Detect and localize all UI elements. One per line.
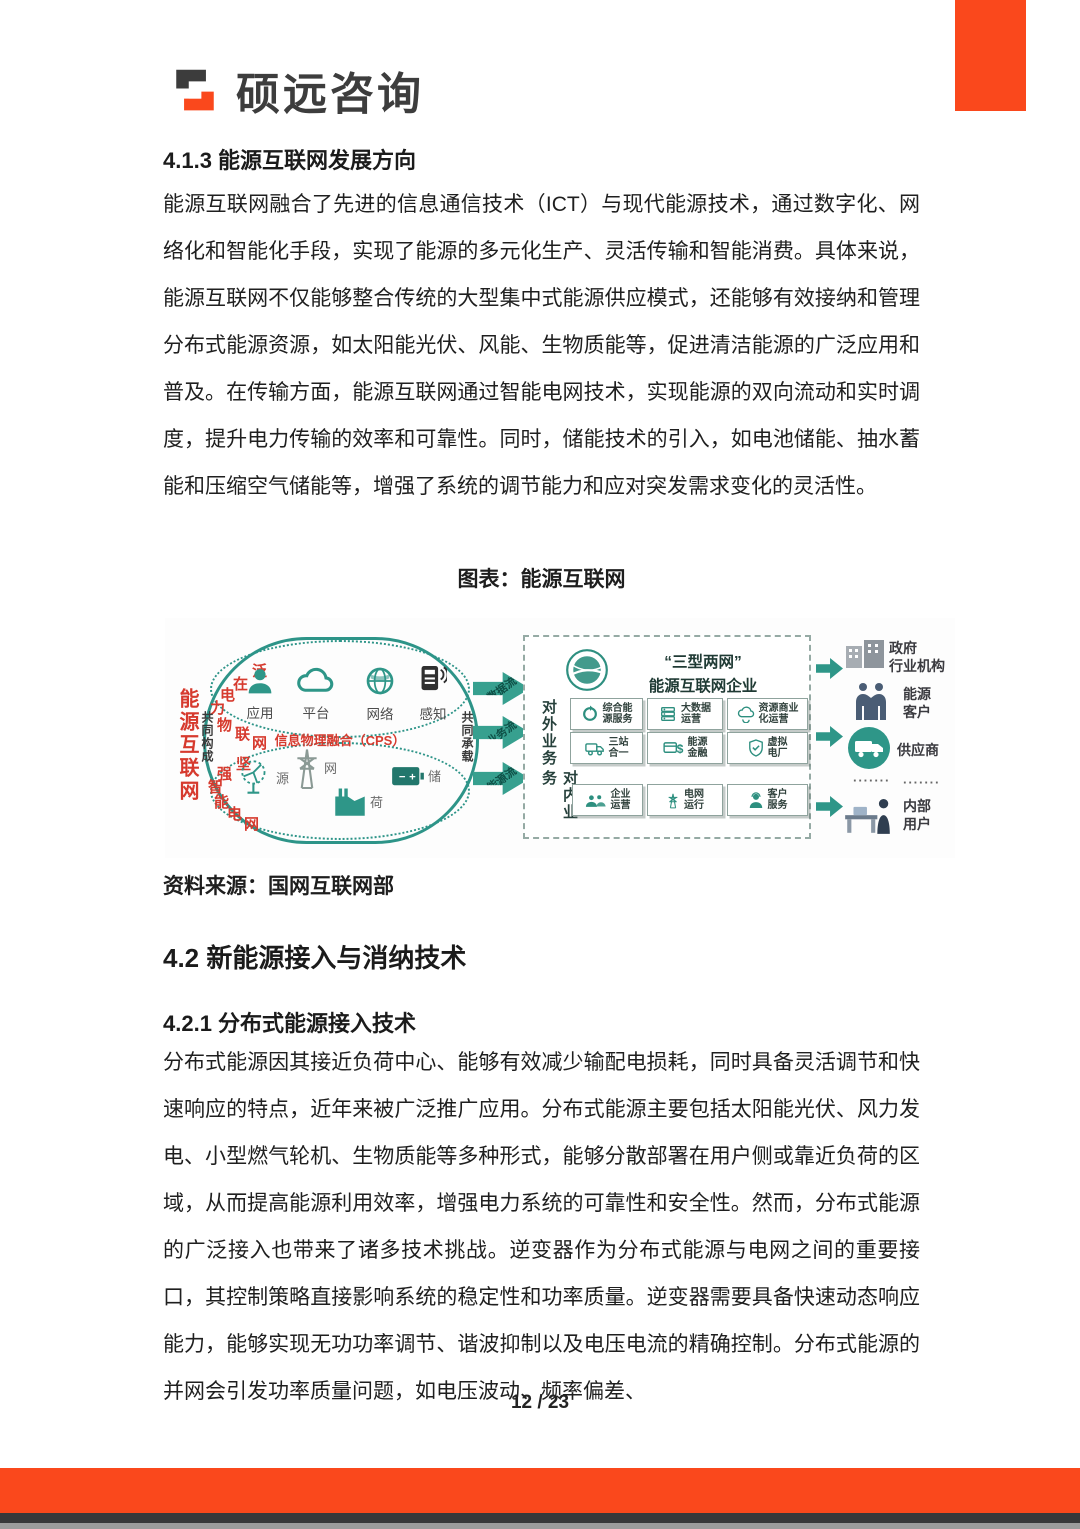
state-grid-globe-logo	[565, 648, 609, 692]
business-flow-arrow: 业务流	[473, 716, 530, 749]
enterprise-box: “三型两网” 能源互联网企业 对外业务 对内业务 综合能 源服务 大数据 运营	[523, 635, 811, 839]
node-label: 网络	[355, 703, 405, 723]
transmission-tower-icon	[293, 744, 321, 790]
ellipsis-dots: ·······	[903, 775, 940, 790]
node-storage: − + 储	[391, 762, 441, 788]
node-label: 平台	[291, 702, 341, 722]
node-generation: 源	[239, 759, 289, 795]
node-load: 荷	[333, 784, 383, 818]
service-box-label: 综合能 源服务	[603, 703, 633, 725]
service-box-virtual-plant: 虚拟 电厂	[727, 732, 808, 764]
heading-4-2: 4.2 新能源接入与消纳技术	[163, 938, 466, 975]
service-box-label: 企业 运营	[611, 789, 631, 811]
government-building-icon	[841, 636, 889, 672]
service-box-integrated-energy: 综合能 源服务	[570, 698, 643, 730]
service-box-customer-service: 客户 服务	[727, 784, 808, 816]
service-box-grid-operation: 电网 运行	[647, 784, 723, 816]
enterprise-title-quote: “三型两网”	[615, 650, 791, 672]
energy-flow-arrow: 能源流	[473, 762, 530, 795]
figure-caption: 图表：能源互联网	[163, 563, 920, 593]
stakeholder-label: 政府 行业机构	[889, 640, 945, 675]
arrow-to-government	[816, 658, 843, 679]
stakeholder-label: 内部 用户	[903, 798, 931, 833]
heading-4-1-3: 4.1.3 能源互联网发展方向	[163, 143, 416, 175]
enterprise-title: “三型两网” 能源互联网企业	[615, 650, 791, 696]
node-application: 应用	[235, 664, 285, 722]
person-icon	[244, 664, 276, 696]
heading-4-2-1: 4.2.1 分布式能源接入技术	[163, 1006, 416, 1038]
svg-text:$: $	[676, 742, 683, 756]
agent-headset-icon	[748, 791, 764, 809]
flow-label: 数据流	[483, 672, 519, 704]
service-box-label: 大数据 运营	[681, 703, 711, 725]
supplier-truck-icon	[847, 726, 891, 770]
footer-gray-strip	[0, 1523, 1080, 1529]
node-label: 荷	[370, 792, 383, 811]
svg-text:+: +	[409, 772, 416, 784]
page-number: 12 / 23	[0, 1392, 1080, 1414]
node-grid: 网	[293, 744, 337, 790]
node-label: 储	[428, 766, 441, 785]
brand-header: 硕远咨询	[170, 58, 424, 122]
arrow-to-supplier	[816, 726, 843, 747]
service-box-label: 资源商业 化运营	[759, 703, 799, 725]
truck-icon	[585, 741, 605, 756]
service-box-energy-finance: $ 能源 金融	[647, 732, 723, 764]
service-box-label: 能源 金融	[688, 737, 708, 759]
stakeholder-label: 能源 客户	[903, 686, 931, 721]
arrow-to-internal	[816, 796, 843, 817]
footer-dark-bar	[0, 1513, 1080, 1523]
node-network: 网络	[355, 665, 405, 723]
service-box-bigdata: 大数据 运营	[647, 698, 723, 730]
enterprise-title-main: 能源互联网企业	[615, 674, 791, 696]
brand-name: 硕远咨询	[236, 58, 424, 122]
stakeholder-label: 供应商	[897, 742, 939, 760]
handshake-people-icon	[851, 680, 891, 722]
energy-internet-diagram: 能源互联网 泛 在 电 力 物 联 网 坚 强 智 能 电 网 共同构成 共同承…	[165, 618, 955, 858]
shield-check-icon	[748, 739, 764, 757]
brand-logo-icon	[170, 64, 220, 116]
external-business-label: 对外业务	[538, 699, 559, 767]
people-group-icon	[585, 793, 607, 808]
source-line: 资料来源：国网互联网部	[163, 870, 394, 900]
service-box-label: 客户 服务	[768, 789, 788, 811]
service-box-enterprise-ops: 企业 运营	[572, 784, 643, 816]
flow-label: 能源流	[483, 762, 519, 794]
service-box-label: 虚拟 电厂	[768, 737, 788, 759]
grid-arc-char: 电	[227, 803, 242, 824]
paragraph-energy-internet: 能源互联网融合了先进的信息通信技术（ICT）与现代能源技术，通过数字化、网络化和…	[163, 181, 920, 510]
internal-user-desk-icon	[841, 786, 895, 836]
service-box-label: 三站 合一	[609, 737, 629, 759]
finance-card-icon: $	[663, 741, 684, 756]
node-sensing: 感知	[408, 663, 458, 723]
report-page: 硕远咨询 4.1.3 能源互联网发展方向 能源互联网融合了先进的信息通信技术（I…	[0, 0, 1080, 1529]
battery-icon: − +	[391, 762, 425, 788]
node-label: 感知	[408, 703, 458, 723]
wind-turbine-icon	[239, 759, 273, 795]
flow-label: 业务流	[483, 716, 519, 748]
service-box-resource-commercial: 资源商业 化运营	[727, 698, 808, 730]
tower-icon	[666, 791, 680, 809]
factory-icon	[333, 784, 367, 818]
node-label: 源	[276, 768, 289, 787]
cloud-icon	[296, 666, 336, 696]
node-platform: 平台	[291, 666, 341, 722]
corner-accent-block	[955, 0, 1026, 111]
circular-arrows-icon	[581, 705, 599, 723]
node-label: 应用	[235, 702, 285, 722]
iot-arc-char: 物	[217, 714, 232, 735]
server-icon	[659, 705, 677, 723]
globe-icon	[364, 665, 396, 697]
data-flow-arrow: 数据流	[473, 672, 530, 705]
footer-accent-bar	[0, 1468, 1080, 1513]
diagram-left-title: 能源互联网	[173, 688, 202, 803]
node-label: 网	[324, 758, 337, 777]
service-box-label: 电网 运行	[684, 789, 704, 811]
service-box-three-stations: 三站 合一	[570, 732, 643, 764]
cps-label: 信息物理融合（CPS）	[260, 730, 420, 749]
svg-text:−: −	[399, 772, 406, 784]
iot-arc-char: 联	[235, 723, 250, 744]
compose-label: 共同构成	[199, 711, 216, 763]
meter-icon	[419, 663, 447, 697]
grid-arc-char: 网	[244, 813, 259, 834]
cloud-sync-icon	[737, 705, 755, 723]
paragraph-distributed-energy: 分布式能源因其接近负荷中心、能够有效减少输配电损耗，同时具备灵活调节和快速响应的…	[163, 1039, 920, 1415]
